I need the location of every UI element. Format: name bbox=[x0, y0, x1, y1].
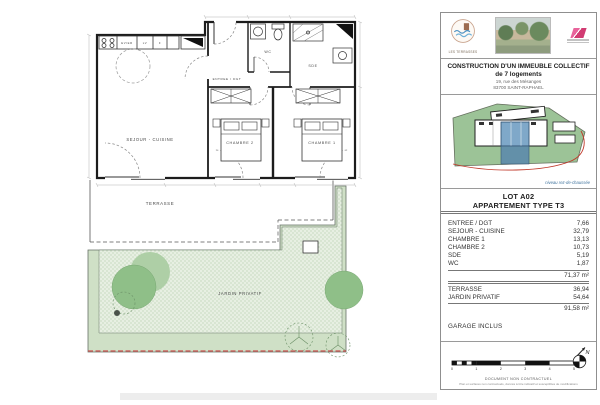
area-value: 1,87 bbox=[577, 260, 589, 268]
developer-logo-icon bbox=[450, 18, 476, 44]
project-title-block: CONSTRUCTION D'UN IMMEUBLE COLLECTIF de … bbox=[441, 59, 596, 95]
floorplan-drawing: JARDIN PRIVATIF TERRASSE bbox=[0, 0, 440, 400]
room-label-entree: ENTREE / DGT bbox=[213, 77, 242, 81]
area-value: 13,13 bbox=[573, 236, 589, 244]
divider bbox=[448, 281, 589, 284]
kitchen-fridge-label: F bbox=[159, 41, 161, 45]
project-title-line2: de 7 logements bbox=[441, 71, 596, 79]
area-label: CHAMBRE 1 bbox=[448, 236, 485, 244]
info-panel: LES TERRASSES CONSTRUCTION D'UN IMMEUBLE… bbox=[440, 12, 597, 390]
area-value: 36,94 bbox=[573, 286, 589, 294]
area-value: 10,73 bbox=[573, 244, 589, 252]
area-row: CHAMBRE 1 13,13 bbox=[448, 236, 589, 244]
interior-total: 71,37 m² bbox=[448, 270, 589, 281]
siteplan-section: niveau rez-de-chaussée bbox=[441, 95, 596, 189]
scale-bar: 0 1 2 3 4 5 bbox=[448, 359, 580, 373]
room-label-sde: SDE bbox=[308, 64, 317, 68]
developer-logo: LES TERRASSES bbox=[446, 18, 480, 54]
area-label: WC bbox=[448, 260, 459, 268]
kitchen-tall-unit bbox=[181, 36, 205, 49]
project-photo bbox=[495, 17, 551, 54]
room-label-wc: WC bbox=[264, 50, 271, 54]
panel-header: LES TERRASSES bbox=[441, 13, 596, 59]
agency-logo bbox=[565, 28, 591, 43]
lot-type: APPARTEMENT TYPE T3 bbox=[441, 201, 596, 210]
area-label: TERRASSE bbox=[448, 286, 482, 294]
shower bbox=[293, 24, 323, 41]
area-label: SEJOUR - CUISINE bbox=[448, 228, 505, 236]
area-value: 5,19 bbox=[577, 252, 589, 260]
siteplan-drawing bbox=[445, 98, 593, 178]
project-address-line2: 83700 SAINT-RAPHAEL bbox=[441, 85, 596, 91]
svg-text:N: N bbox=[586, 350, 590, 356]
grand-total: 91,58 m² bbox=[448, 303, 589, 314]
room-label-chambre2: CHAMBRE 2 bbox=[226, 141, 254, 145]
lot-name: LOT A02 bbox=[441, 192, 596, 201]
area-label: JARDIN PRIVATIF bbox=[448, 294, 500, 302]
page: { "brand": {"name": "LES TERRASSES"}, "p… bbox=[0, 0, 600, 400]
bed-chambre2 bbox=[213, 119, 269, 161]
garden-label: JARDIN PRIVATIF bbox=[218, 291, 262, 296]
project-title-line1: CONSTRUCTION D'UN IMMEUBLE COLLECTIF bbox=[441, 63, 596, 71]
washing-machine bbox=[251, 24, 266, 39]
north-arrow-icon: N bbox=[570, 344, 592, 370]
bed-chambre1 bbox=[294, 119, 350, 161]
areas-table: ENTREE / DGT 7,66 SEJOUR - CUISINE 32,79… bbox=[441, 214, 596, 341]
area-value: 54,64 bbox=[573, 294, 589, 302]
area-row: TERRASSE 36,94 bbox=[448, 286, 589, 294]
svg-text:3: 3 bbox=[524, 367, 526, 371]
area-row: SEJOUR - CUISINE 32,79 bbox=[448, 228, 589, 236]
utility-box bbox=[303, 241, 318, 253]
area-row: CHAMBRE 2 10,73 bbox=[448, 244, 589, 252]
svg-text:4: 4 bbox=[549, 367, 551, 371]
kitchen-dishwasher-label: LV bbox=[143, 41, 147, 45]
area-label: SDE bbox=[448, 252, 461, 260]
agency-logo-icon bbox=[570, 28, 586, 38]
garden-point bbox=[114, 310, 120, 316]
scan-shadow bbox=[120, 393, 437, 400]
washbasin bbox=[333, 48, 352, 63]
floorplan-area: JARDIN PRIVATIF TERRASSE bbox=[0, 0, 440, 400]
tree bbox=[325, 271, 363, 309]
svg-text:2: 2 bbox=[500, 367, 502, 371]
document-caption: DOCUMENT NON CONTRACTUEL bbox=[441, 377, 596, 381]
kitchen-sink-label: EVIER bbox=[121, 41, 132, 45]
area-row: WC 1,87 bbox=[448, 260, 589, 268]
tree bbox=[112, 265, 156, 309]
sliding-doors bbox=[105, 176, 348, 181]
room-label-chambre1: CHAMBRE 1 bbox=[308, 141, 336, 145]
area-row: JARDIN PRIVATIF 54,64 bbox=[448, 294, 589, 302]
kitchen-counter bbox=[99, 36, 179, 49]
area-row: SDE 5,19 bbox=[448, 252, 589, 260]
highlighted-unit bbox=[501, 122, 529, 164]
developer-name: LES TERRASSES bbox=[446, 50, 480, 54]
fine-print: Plan et surfaces non contractuels, donné… bbox=[443, 382, 594, 386]
terrace-label: TERRASSE bbox=[146, 201, 174, 206]
area-label: ENTREE / DGT bbox=[448, 220, 492, 228]
agency-logo-text bbox=[565, 39, 591, 43]
panel-footer: 0 1 2 3 4 5 N DOCUMENT NON CONTRACTUEL P… bbox=[441, 341, 596, 389]
lot-title-block: LOT A02 APPARTEMENT TYPE T3 bbox=[441, 189, 596, 214]
svg-text:1: 1 bbox=[475, 367, 477, 371]
area-value: 7,66 bbox=[577, 220, 589, 228]
area-value: 32,79 bbox=[573, 228, 589, 236]
garage-note: GARAGE INCLUS bbox=[448, 323, 589, 330]
area-label: CHAMBRE 2 bbox=[448, 244, 485, 252]
siteplan-caption: niveau rez-de-chaussée bbox=[545, 180, 590, 185]
area-row: ENTREE / DGT 7,66 bbox=[448, 220, 589, 228]
room-label-sejour: SEJOUR - CUISINE bbox=[126, 137, 173, 142]
svg-text:0: 0 bbox=[451, 367, 453, 371]
